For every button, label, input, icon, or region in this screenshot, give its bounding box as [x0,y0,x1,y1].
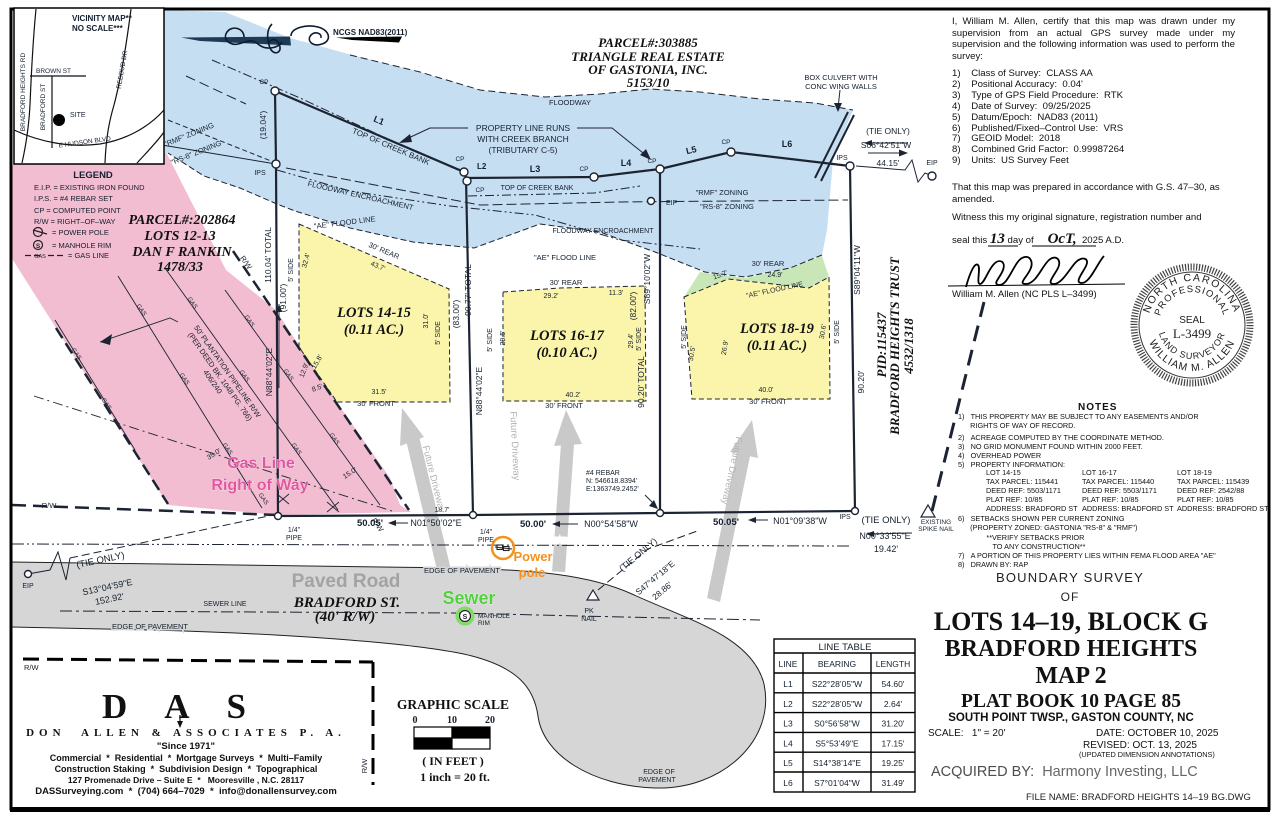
svg-text:Gas Line: Gas Line [227,455,295,472]
svg-text:90.77' TOTAL: 90.77' TOTAL [463,264,473,316]
svg-text:0: 0 [413,715,418,726]
svg-text:BOX CULVERT WITH: BOX CULVERT WITH [804,73,877,82]
svg-text:5' SIDE: 5' SIDE [487,328,494,352]
svg-text:E:1363749.2452': E:1363749.2452' [586,486,639,493]
svg-text:(TIE ONLY): (TIE ONLY) [862,515,911,526]
svg-text:Right of Way: Right of Way [211,477,308,494]
svg-text:5153/10: 5153/10 [627,75,670,90]
svg-text:30' REAR: 30' REAR [752,259,785,268]
svg-text:BEARING: BEARING [818,659,856,669]
svg-text:N00°54’58"W: N00°54’58"W [584,519,638,529]
svg-text:L6: L6 [783,778,793,788]
svg-text:S06°42’51"W: S06°42’51"W [861,140,911,150]
svg-text:54.60': 54.60' [882,679,905,689]
svg-text:30' FRONT: 30' FRONT [749,397,787,406]
svg-text:Sewer: Sewer [442,588,495,608]
svg-text:(83.00'): (83.00') [451,300,461,329]
svg-text:GAS: GAS [34,254,46,260]
svg-text:19.42': 19.42' [874,544,899,554]
svg-text:50.00': 50.00' [520,519,546,530]
svg-text:WITH CREEK BRANCH: WITH CREEK BRANCH [477,134,569,144]
svg-text:S7°01’04"W: S7°01’04"W [814,778,860,788]
svg-text:IPS: IPS [254,170,266,177]
svg-text:(19.04'): (19.04') [258,111,268,140]
svg-text:RIM: RIM [478,620,490,627]
svg-text:L4: L4 [783,738,793,748]
svg-text:S14°38’14"E: S14°38’14"E [813,758,861,768]
svg-text:(40' R/W): (40' R/W) [315,609,375,625]
svg-text:31.20': 31.20' [882,719,905,729]
svg-text:L3: L3 [783,719,793,729]
svg-text:LINE TABLE: LINE TABLE [819,642,872,653]
svg-text:IPS: IPS [836,155,848,162]
svg-text:R/W: R/W [360,758,369,774]
svg-text:EIP: EIP [666,200,678,207]
svg-text:L3: L3 [530,164,541,174]
svg-text:LINE: LINE [779,659,798,669]
svg-text:5' SIDE: 5' SIDE [435,321,442,345]
svg-text:NCGS NAD83(2011): NCGS NAD83(2011) [333,28,408,37]
svg-text:29.2': 29.2' [544,293,559,300]
svg-text:20: 20 [485,715,495,726]
svg-text:PAVEMENT: PAVEMENT [638,777,676,784]
svg-text:PIPE: PIPE [286,535,302,542]
svg-text:EDGE OF: EDGE OF [643,769,675,776]
svg-text:EIP: EIP [22,583,34,590]
svg-text:(TIE ONLY): (TIE ONLY) [866,126,910,136]
svg-text:30' FRONT: 30' FRONT [545,401,583,410]
svg-text:S89°04’11"W: S89°04’11"W [852,245,862,295]
svg-text:S0°56’58"W: S0°56’58"W [814,719,860,729]
svg-text:( IN FEET ): ( IN FEET ) [422,754,483,768]
svg-text:N01°50’02"E: N01°50’02"E [410,518,461,528]
svg-text:5' SIDE: 5' SIDE [681,325,688,349]
svg-text:(TRIBUTARY C-5): (TRIBUTARY C-5) [489,145,558,155]
svg-text:VICINITY MAP**: VICINITY MAP** [72,14,133,23]
svg-text:31.5': 31.5' [372,389,387,396]
svg-text:S5°53’49"E: S5°53’49"E [815,738,859,748]
svg-text:N01°09’38"W: N01°09’38"W [773,516,827,526]
svg-text:S22°28’05"W: S22°28’05"W [812,699,862,709]
svg-text:TOP OF CREEK BANK: TOP OF CREEK BANK [501,185,574,192]
svg-text:CP: CP [647,158,656,165]
svg-text:90.20': 90.20' [856,370,866,393]
svg-text:= MANHOLE RIM: = MANHOLE RIM [52,241,111,250]
svg-text:50.05': 50.05' [357,518,383,529]
svg-text:4532/1318: 4532/1318 [901,318,916,375]
svg-text:110.04' TOTAL: 110.04' TOTAL [263,227,273,283]
svg-text:1 inch = 20 ft.: 1 inch = 20 ft. [420,770,490,784]
svg-text:R/W: R/W [42,501,58,510]
svg-text:5' SIDE: 5' SIDE [834,320,841,344]
svg-text:PK: PK [584,608,594,615]
svg-text:11.3': 11.3' [609,290,623,297]
svg-text:(TIE ONLY): (TIE ONLY) [617,536,659,573]
svg-text:FLOODWAY ENCROACHMENT: FLOODWAY ENCROACHMENT [553,228,655,235]
svg-text:R/W: R/W [24,663,40,672]
svg-text:50.05': 50.05' [713,517,739,528]
svg-text:NAIL: NAIL [581,616,597,623]
svg-text:NO SCALE***: NO SCALE*** [72,24,124,33]
svg-text:(0.10 AC.): (0.10 AC.) [536,345,597,361]
svg-text:S89°10’02"W: S89°10’02"W [642,254,652,304]
svg-text:LOTS 12-13: LOTS 12-13 [143,229,215,244]
svg-text:CP = COMPUTED POINT: CP = COMPUTED POINT [34,206,121,215]
svg-text:EDGE OF PAVEMENT: EDGE OF PAVEMENT [424,566,500,575]
svg-text:EXISTING: EXISTING [921,519,951,526]
svg-text:N88°44’02"E: N88°44’02"E [264,347,274,396]
svg-text:5' SIDE: 5' SIDE [636,327,643,351]
svg-text:OVERHEAD POWER: OVERHEAD POWER [34,531,107,540]
svg-text:DAN F RANKIN: DAN F RANKIN [131,245,232,260]
svg-text:EIP: EIP [926,160,938,167]
svg-text:= GAS LINE: = GAS LINE [68,251,109,260]
svg-text:5' SIDE: 5' SIDE [288,258,295,282]
svg-text:FLOODWAY: FLOODWAY [549,98,591,107]
svg-text:CP: CP [455,156,464,163]
svg-text:SITE: SITE [70,112,86,119]
svg-text:SEAL: SEAL [1179,315,1205,326]
svg-text:EDGE OF PAVEMENT: EDGE OF PAVEMENT [112,622,188,631]
svg-text:CP: CP [259,79,268,86]
svg-text:(0.11 AC.): (0.11 AC.) [747,338,807,354]
svg-text:SPIKE NAIL: SPIKE NAIL [918,526,954,533]
svg-text:30' REAR: 30' REAR [550,278,583,287]
svg-text:"RS-8" ZONING: "RS-8" ZONING [700,202,754,211]
svg-text:S22°28’05"W: S22°28’05"W [812,679,862,689]
svg-text:N00°33’55"E: N00°33’55"E [859,531,910,541]
svg-text:31.0': 31.0' [423,314,430,329]
svg-text:MANHOLE: MANHOLE [478,613,511,620]
svg-text:= POWER POLE: = POWER POLE [52,228,109,237]
svg-text:29.5': 29.5' [500,331,507,346]
svg-text:PIPE: PIPE [478,537,494,544]
svg-text:SEWER LINE: SEWER LINE [203,601,247,608]
svg-text:Paved Road: Paved Road [292,571,401,592]
svg-text:#4 REBAR: #4 REBAR [586,470,620,477]
svg-text:1/4": 1/4" [288,527,301,534]
svg-text:N: 546618.8394': N: 546618.8394' [586,478,637,485]
svg-text:LENGTH: LENGTH [876,659,910,669]
svg-text:pole: pole [519,565,546,580]
svg-text:L-3499: L-3499 [1173,326,1211,341]
svg-text:CP: CP [579,166,588,173]
svg-text:30' FRONT: 30' FRONT [357,399,395,408]
svg-text:S: S [463,614,468,621]
svg-text:L4: L4 [621,158,632,168]
svg-text:BRADFORD HEIGHTS TRUST: BRADFORD HEIGHTS TRUST [887,256,902,436]
svg-text:L6: L6 [782,139,793,149]
svg-text:BROWN ST: BROWN ST [36,68,71,75]
svg-text:GRAPHIC SCALE: GRAPHIC SCALE [397,697,509,712]
svg-text:CP: CP [721,139,730,146]
svg-text:19.25': 19.25' [882,758,905,768]
svg-text:BRADFORD HEIGHTS RD: BRADFORD HEIGHTS RD [20,53,27,132]
svg-text:LOTS 14-15: LOTS 14-15 [336,305,411,321]
svg-text:"RMF" ZONING: "RMF" ZONING [696,188,749,197]
svg-text:PARCEL#:202864: PARCEL#:202864 [128,213,235,228]
svg-text:Power: Power [513,549,552,564]
svg-text:BRADFORD ST: BRADFORD ST [40,84,47,131]
svg-text:29.4': 29.4' [628,334,635,349]
svg-text:CP: CP [475,187,484,194]
svg-text:L2: L2 [783,699,793,709]
svg-text:(0.11 AC.): (0.11 AC.) [344,322,404,338]
svg-text:LOTS 16-17: LOTS 16-17 [529,328,604,344]
svg-text:L5: L5 [783,758,793,768]
svg-text:IPS: IPS [839,514,851,521]
svg-text:S: S [36,243,41,250]
svg-text:OVERHEAD POWER: OVERHEAD POWER [526,536,599,545]
svg-text:PROPERTY LINE RUNS: PROPERTY LINE RUNS [476,123,570,133]
svg-text:1/4": 1/4" [480,529,493,536]
svg-text:(91.00'): (91.00') [278,284,288,313]
svg-text:E.I.P. = EXISTING IRON FOUND: E.I.P. = EXISTING IRON FOUND [34,183,145,192]
svg-text:40.0': 40.0' [759,387,774,394]
svg-text:N88°44’02"E: N88°44’02"E [474,366,484,415]
svg-text:44.15': 44.15' [877,158,900,168]
svg-text:10: 10 [447,715,457,726]
svg-text:LEGEND: LEGEND [73,170,113,181]
svg-text:R/W: R/W [238,254,254,272]
svg-text:2.64': 2.64' [884,699,903,709]
svg-text:(82.00'): (82.00') [628,292,638,321]
svg-text:24.9': 24.9' [768,272,783,279]
svg-text:40.2': 40.2' [566,392,581,399]
svg-text:Future Driveway: Future Driveway [507,411,522,481]
svg-text:I.P.S. = #4 REBAR SET: I.P.S. = #4 REBAR SET [34,194,113,203]
svg-text:"AE" FLOOD LINE: "AE" FLOOD LINE [534,253,596,262]
svg-text:L1: L1 [783,679,793,689]
svg-text:CONC WING WALLS: CONC WING WALLS [805,82,877,91]
svg-text:17.15': 17.15' [882,738,905,748]
svg-text:1478/33: 1478/33 [157,260,203,275]
svg-text:L2: L2 [477,162,487,171]
svg-text:31.49': 31.49' [882,778,905,788]
svg-text:LOTS 18-19: LOTS 18-19 [739,321,814,337]
svg-text:PARCEL#:303885: PARCEL#:303885 [598,35,698,50]
svg-text:R/W = RIGHT–OF–WAY: R/W = RIGHT–OF–WAY [34,217,115,226]
svg-text:90.20' TOTAL: 90.20' TOTAL [636,356,646,408]
